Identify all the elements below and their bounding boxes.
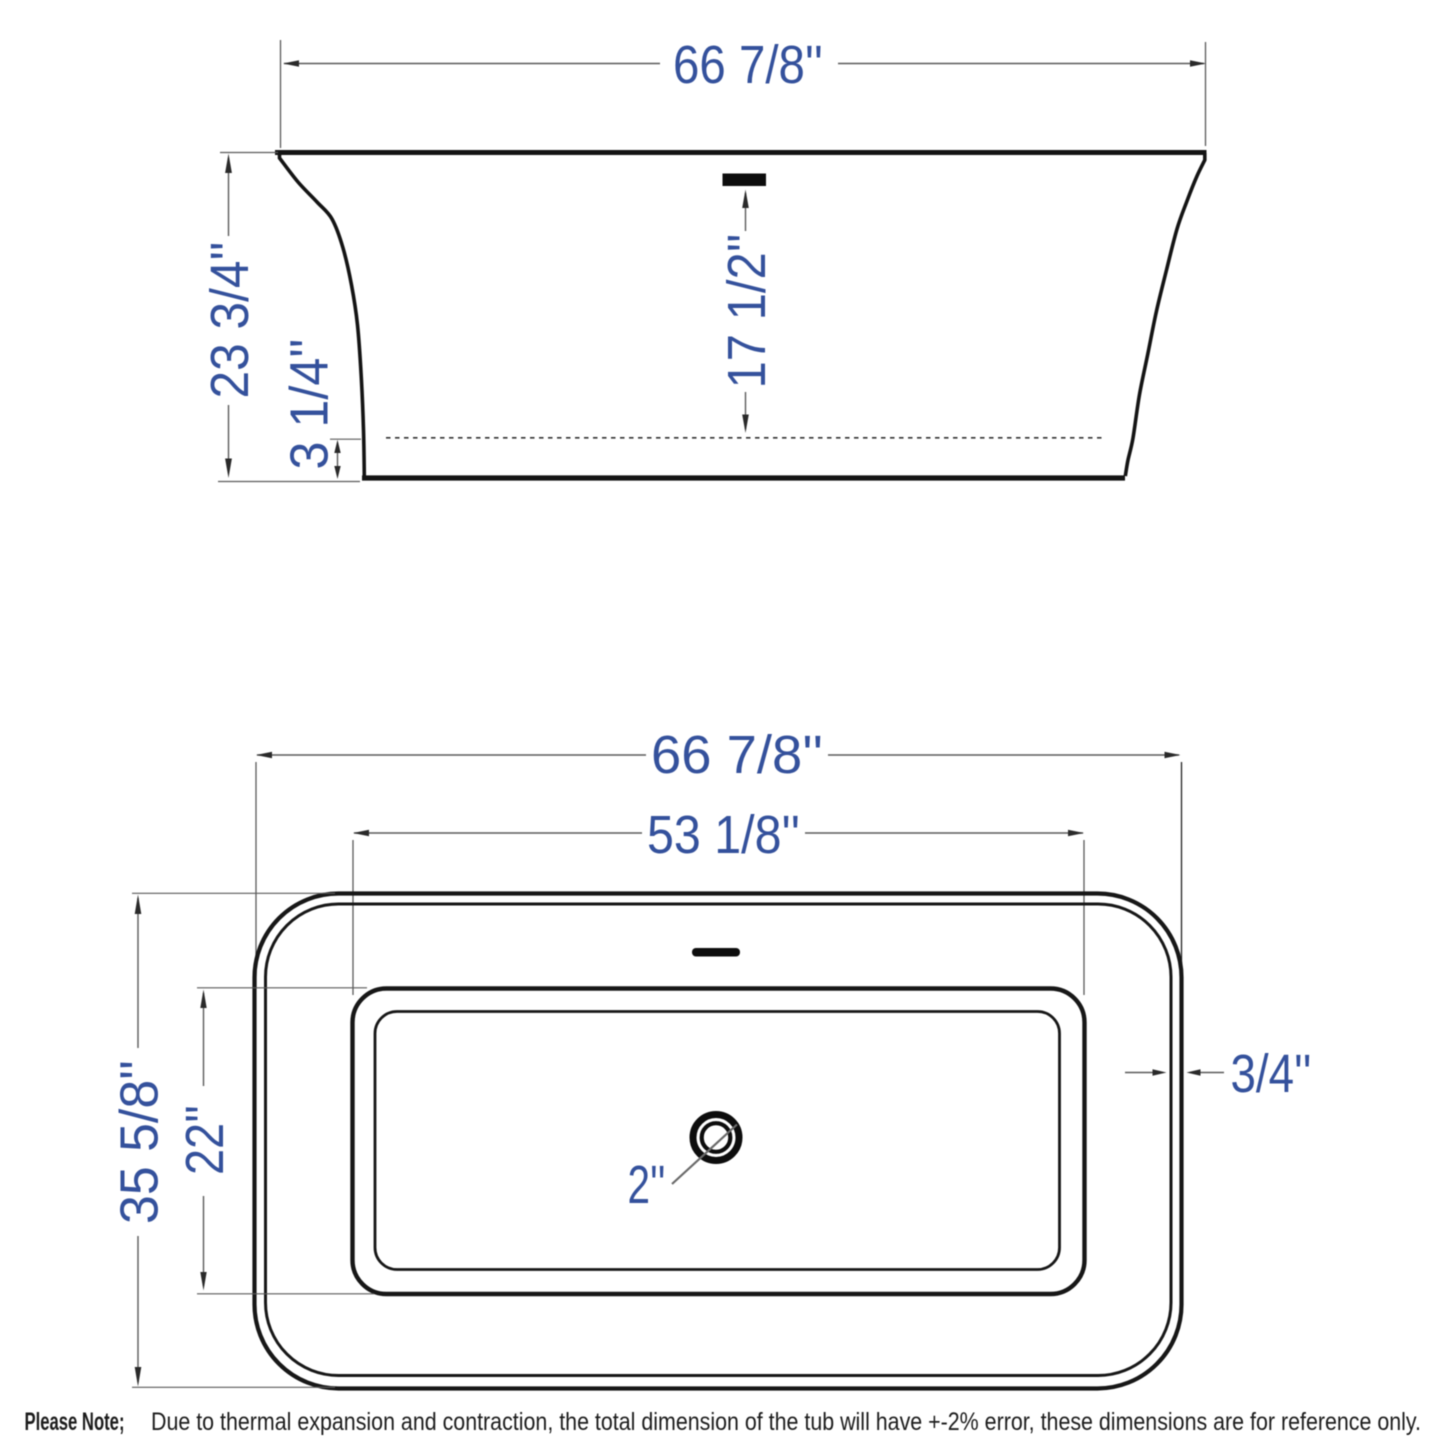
- svg-text:3 1/4'': 3 1/4'': [280, 339, 340, 470]
- svg-text:23 3/4'': 23 3/4'': [200, 242, 260, 399]
- svg-text:17 1/2'': 17 1/2'': [717, 234, 777, 389]
- svg-text:Due to thermal expansion and c: Due to thermal expansion and contraction…: [151, 1408, 1421, 1436]
- svg-text:66 7/8'': 66 7/8'': [673, 35, 823, 95]
- svg-text:53 1/8'': 53 1/8'': [647, 805, 800, 865]
- svg-text:66 7/8'': 66 7/8'': [651, 725, 823, 785]
- svg-text:Please Note;: Please Note;: [25, 1408, 125, 1436]
- svg-text:22'': 22'': [175, 1105, 235, 1175]
- svg-text:3/4'': 3/4'': [1231, 1044, 1312, 1104]
- svg-text:35 5/8'': 35 5/8'': [110, 1060, 170, 1224]
- svg-text:2'': 2'': [628, 1155, 666, 1215]
